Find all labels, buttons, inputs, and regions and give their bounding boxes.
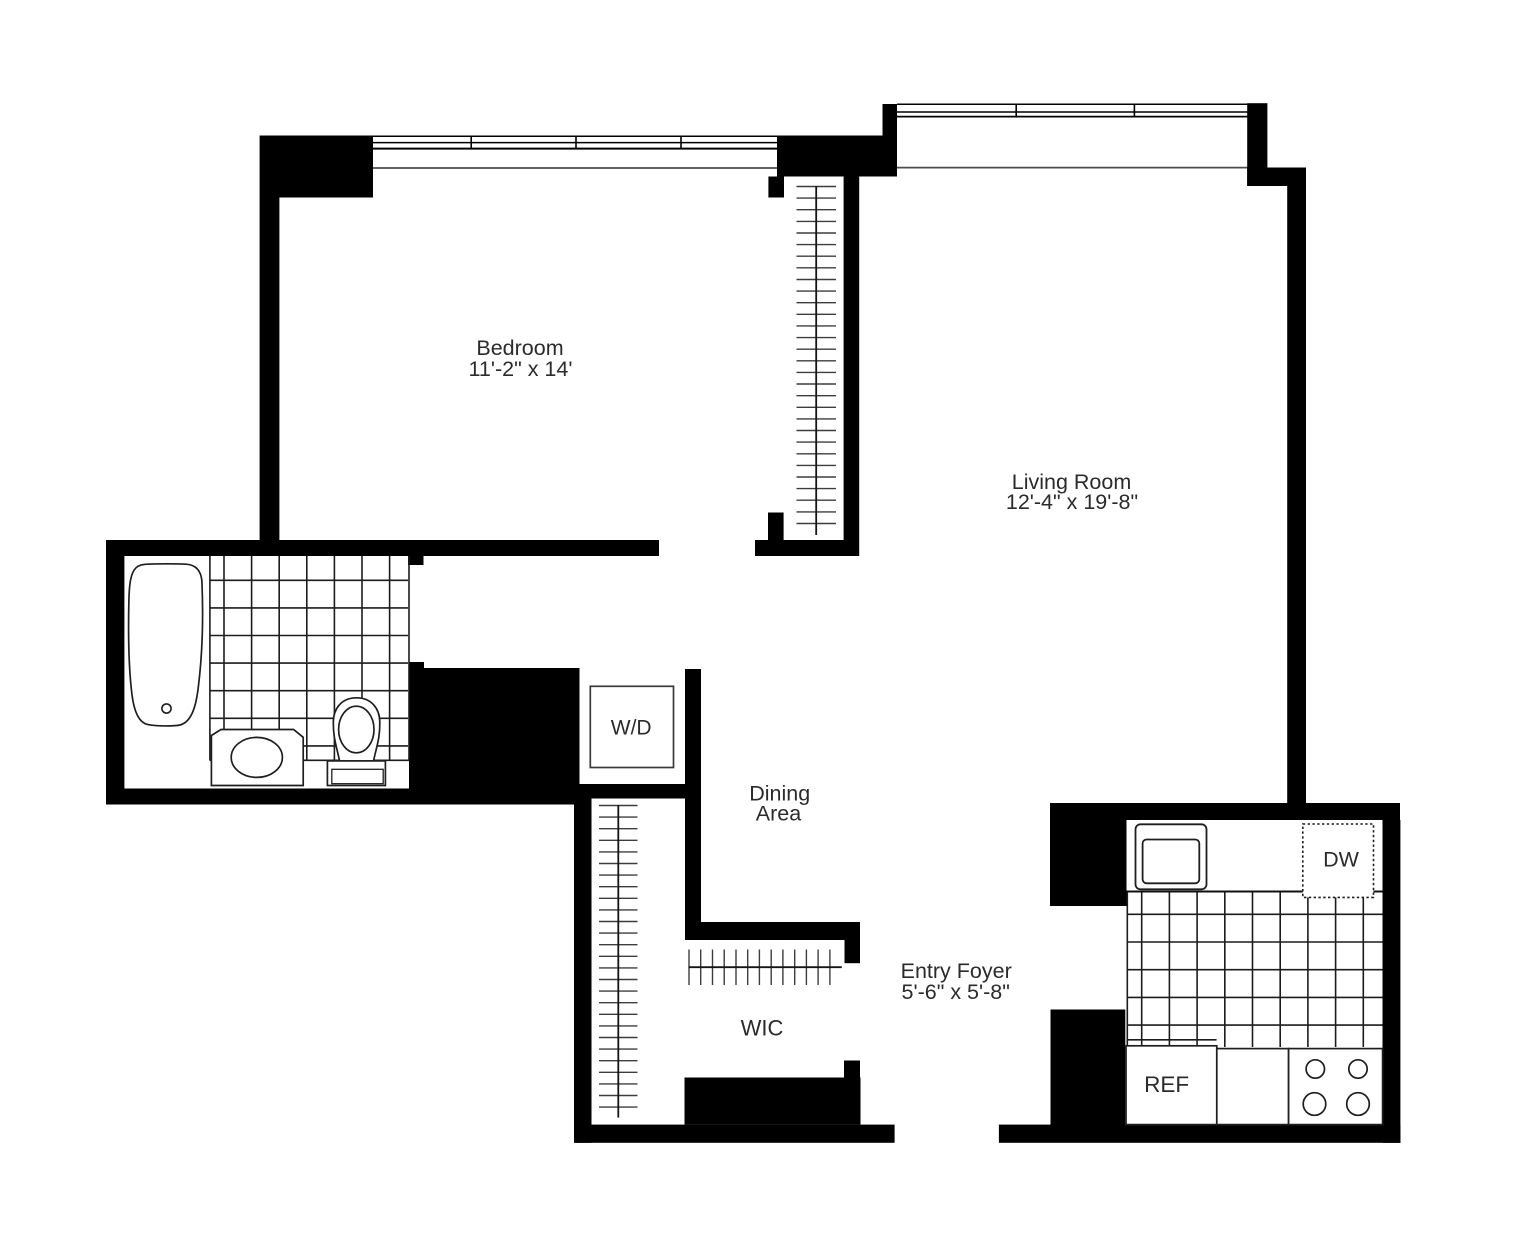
svg-text:WIC: WIC bbox=[741, 1015, 784, 1040]
svg-text:REF: REF bbox=[1144, 1072, 1189, 1097]
svg-text:Entry Foyer: Entry Foyer bbox=[901, 959, 1012, 983]
svg-text:W/D: W/D bbox=[611, 716, 652, 739]
svg-text:5'-6" x 5'-8": 5'-6" x 5'-8" bbox=[902, 980, 1010, 1004]
svg-text:11'-2" x 14': 11'-2" x 14' bbox=[469, 357, 573, 381]
svg-text:DW: DW bbox=[1323, 848, 1360, 872]
svg-text:12'-4" x 19'-8": 12'-4" x 19'-8" bbox=[1006, 490, 1138, 514]
svg-text:Area: Area bbox=[756, 802, 801, 826]
